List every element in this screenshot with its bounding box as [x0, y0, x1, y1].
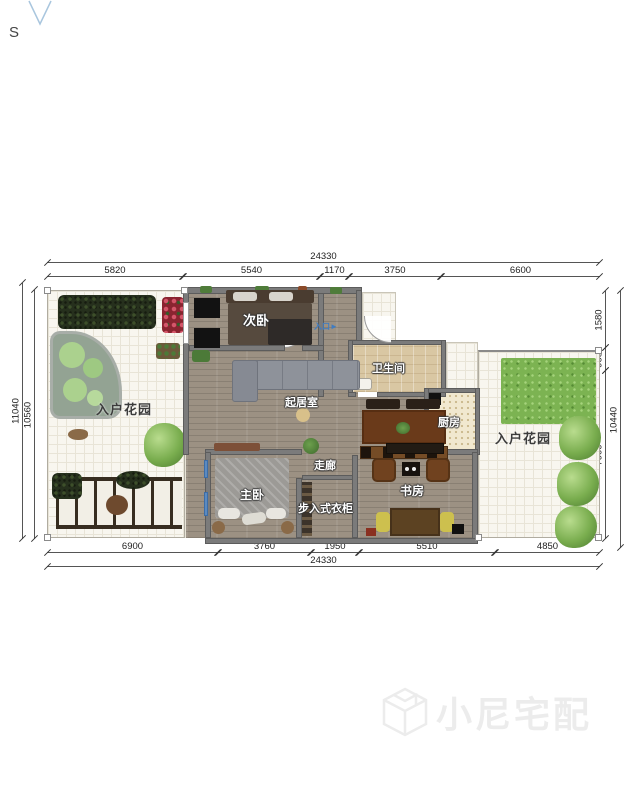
flower-bed: [162, 297, 184, 333]
armchair: [426, 458, 450, 482]
dim-top-seg: 6600: [441, 276, 600, 277]
shelf-plant: [192, 350, 210, 362]
dim-right-outer: 10440: [620, 291, 621, 548]
master-pillow: [218, 508, 240, 519]
wardrobe: [194, 328, 220, 348]
garden-left-label: 入户花园: [96, 399, 152, 418]
dim-bottom-seg: 3760: [218, 552, 311, 553]
corner-post: [595, 534, 602, 541]
planter-box: [156, 343, 180, 359]
lawn: [501, 358, 596, 424]
garden-door: [183, 302, 189, 344]
entrance-arrow-icon: ►: [330, 322, 338, 331]
garden-rock: [68, 429, 88, 440]
corner-post: [475, 534, 482, 541]
armchair: [372, 458, 396, 482]
wall-closet-right: [352, 455, 358, 538]
side-porch: [446, 342, 478, 392]
desk-chair: [376, 512, 390, 532]
label-walk-in-closet: 步入式衣柜: [298, 500, 353, 516]
dim-bottom-seg: 5510: [359, 552, 495, 553]
dining-chairs: [406, 399, 440, 409]
wall-bath-top: [348, 340, 446, 345]
bed2-pillow: [233, 292, 257, 301]
wall-bath-bottom-a: [348, 392, 356, 397]
dim-bottom-seg: 6900: [47, 552, 218, 553]
console-table: [386, 443, 444, 454]
wall-planter: [200, 286, 212, 293]
garden-bush: [144, 423, 186, 467]
watermark: 小尼宅配: [382, 686, 592, 738]
garden-bush: [559, 416, 601, 460]
floor-plan: S 24330 5820 5540 1170 3750 6600 6900 37…: [0, 0, 640, 800]
dim-right-seg: 1580: [605, 291, 606, 348]
dining-table: [362, 410, 446, 444]
dim-top-total: 24330: [47, 262, 600, 263]
label-bathroom: 卫生间: [372, 360, 405, 376]
study-item: [366, 528, 376, 536]
corner-post: [44, 287, 51, 294]
hedge: [58, 295, 156, 329]
wardrobe: [194, 298, 220, 318]
label-kitchen: 厨房: [438, 414, 460, 430]
garden-right-label: 入户花园: [495, 428, 551, 447]
dim-top-seg: 1170: [320, 276, 349, 277]
corner-post: [44, 534, 51, 541]
sofa-chaise: [232, 360, 258, 402]
corner-post: [181, 287, 188, 294]
dining-chairs: [366, 399, 400, 409]
bed2-pillow: [269, 292, 293, 301]
wall-entry-right: [356, 290, 362, 345]
entrance-marker: 入口►: [314, 321, 338, 332]
garden-right: 入户花园: [478, 350, 600, 538]
study-desk: [390, 508, 440, 536]
ottoman: [281, 521, 294, 534]
wall-closet-top: [302, 475, 358, 480]
ottoman: [212, 521, 225, 534]
bed2-body: [228, 303, 312, 345]
dim-bottom-seg: 4850: [495, 552, 600, 553]
dim-bottom-total: 24330: [47, 566, 600, 567]
corner-post: [595, 347, 602, 354]
master-pillow: [266, 508, 286, 519]
wall-bottom: [205, 538, 478, 544]
watermark-brand: 小尼宅配: [436, 686, 592, 738]
floor-plant: [303, 438, 319, 454]
compass-needle-icon: [26, 0, 54, 26]
wall-kitchen-right: [475, 388, 480, 455]
tea-table: [402, 462, 420, 476]
compass-south-label: S: [9, 24, 19, 41]
wall-bedroom2-bottom-b: [302, 345, 324, 351]
watermark-cube-icon: [382, 687, 428, 737]
label-secondary-bedroom: 次卧: [243, 310, 269, 329]
garden-left: 入户花园: [47, 290, 185, 538]
label-corridor: 走廊: [314, 457, 336, 473]
label-study: 书房: [400, 482, 424, 499]
label-master-bedroom: 主卧: [240, 486, 264, 503]
label-living-room: 起居室: [285, 394, 318, 410]
dim-bottom-seg: 1950: [311, 552, 359, 553]
pergola: [56, 477, 182, 529]
window: [204, 492, 208, 516]
wall-planter: [330, 287, 342, 294]
dim-top-seg: 5820: [47, 276, 183, 277]
dim-top-seg: 5540: [183, 276, 320, 277]
dim-top-seg: 3750: [349, 276, 441, 277]
garden-bush: [557, 462, 599, 506]
pergola-table: [106, 495, 128, 515]
dim-left-inner: 10560: [34, 290, 35, 539]
speaker: [452, 524, 464, 534]
side-table: [296, 408, 310, 422]
entrance-label: 入口: [314, 322, 330, 331]
window: [204, 460, 208, 478]
dresser: [214, 443, 260, 451]
dim-right-seg: 7900: [605, 371, 606, 539]
wall-right-lower: [472, 452, 478, 542]
